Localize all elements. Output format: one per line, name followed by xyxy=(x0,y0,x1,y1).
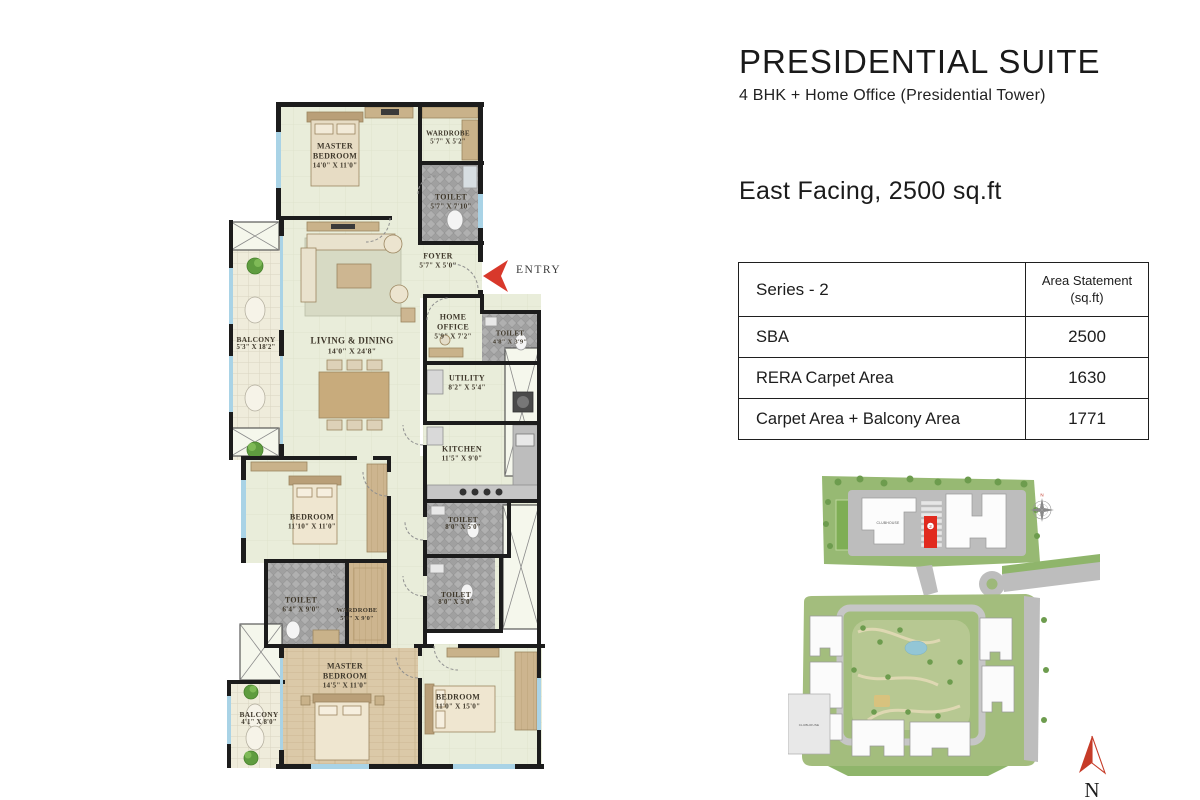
entry-label: ENTRY xyxy=(516,264,561,276)
table-cell-value: 1630 xyxy=(1026,358,1149,399)
table-cell-value: 1771 xyxy=(1026,399,1149,440)
north-label: N xyxy=(1072,778,1112,800)
north-arrow-icon xyxy=(1072,735,1112,775)
headline-block: PRESIDENTIAL SUITE 4 BHK + Home Office (… xyxy=(739,44,1101,105)
table-cell-label: Carpet Area + Balcony Area xyxy=(739,399,1026,440)
north-indicator: N xyxy=(1072,735,1112,800)
table-cell-label: SBA xyxy=(739,317,1026,358)
table-cell-label: RERA Carpet Area xyxy=(739,358,1026,399)
facing-text: East Facing, 2500 sq.ft xyxy=(739,177,1002,206)
entry-arrow-icon xyxy=(483,260,508,292)
floor-plan-drawing xyxy=(215,98,560,782)
table-cell-value: 2500 xyxy=(1026,317,1149,358)
floor-plan: MASTER BEDROOM 14'0" X 11'0" WARDROBE 5'… xyxy=(215,98,560,782)
highlighted-tower xyxy=(924,516,937,548)
table-header-series: Series - 2 xyxy=(739,263,1026,317)
page-subtitle: 4 BHK + Home Office (Presidential Tower) xyxy=(739,87,1101,105)
page-title: PRESIDENTIAL SUITE xyxy=(739,44,1101,80)
area-statement-table: Series - 2 Area Statement (sq.ft) SBA 25… xyxy=(738,262,1149,440)
table-header-area-statement: Area Statement (sq.ft) xyxy=(1026,263,1149,317)
svg-text:N: N xyxy=(1040,493,1043,498)
unit-marker: 2 xyxy=(929,524,932,529)
clubhouse-label-top: CLUBHOUSE xyxy=(877,521,900,525)
site-plan: CLUBHOUSE 2 N xyxy=(788,470,1100,778)
table-row: Carpet Area + Balcony Area 1771 xyxy=(739,399,1149,440)
site-plan-drawing: CLUBHOUSE 2 N xyxy=(788,470,1100,778)
table-row: RERA Carpet Area 1630 xyxy=(739,358,1149,399)
brochure-page: MASTER BEDROOM 14'0" X 11'0" WARDROBE 5'… xyxy=(0,0,1200,800)
table-row: SBA 2500 xyxy=(739,317,1149,358)
clubhouse-label-bottom: CLUBHOUSE xyxy=(799,723,819,727)
